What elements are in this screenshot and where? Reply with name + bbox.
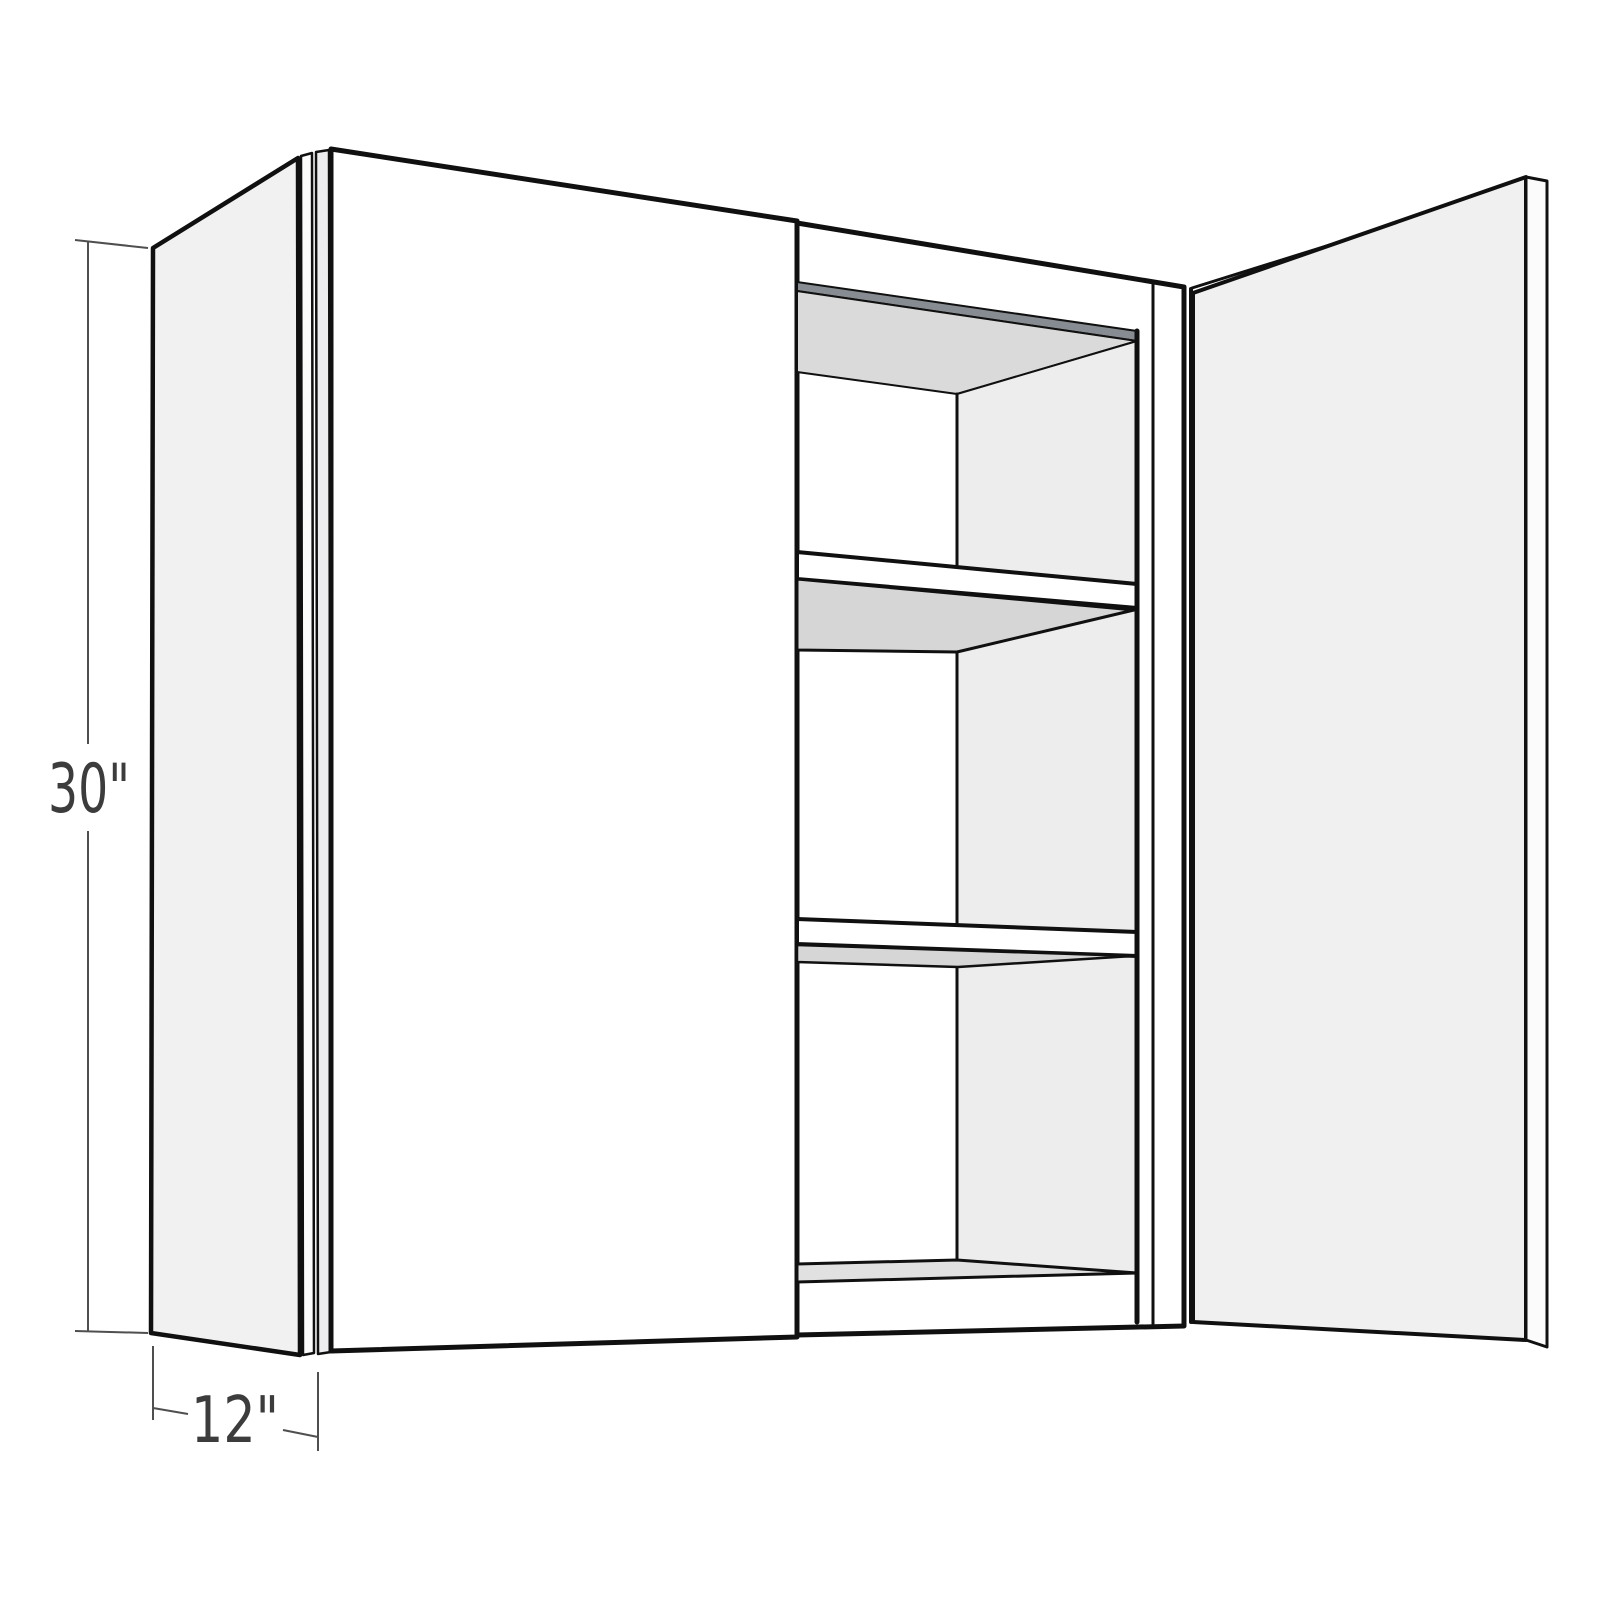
depth-dimension-line-left — [153, 1408, 188, 1414]
cabinet-diagram: 30" 12" — [0, 0, 1600, 1600]
height-dimension-tick-bottom — [75, 1331, 148, 1333]
left-door-face — [331, 149, 797, 1351]
cabinet-left-side-panel — [151, 158, 300, 1355]
interior-right-wall — [957, 341, 1137, 1273]
depth-dimension-line-right — [283, 1430, 318, 1437]
product-image: 30" 12" — [0, 0, 1600, 1600]
cabinet-box — [797, 223, 1184, 1335]
left-door-edge-band-outer — [301, 153, 314, 1355]
cabinet-right-door-open — [1191, 177, 1547, 1347]
open-door-edge-band — [1526, 177, 1547, 1347]
height-dimension-label: 30" — [48, 750, 130, 829]
depth-dimension: 12" — [153, 1346, 318, 1458]
height-dimension: 30" — [48, 240, 148, 1333]
open-door-face — [1193, 177, 1526, 1340]
depth-dimension-label: 12" — [191, 1384, 279, 1458]
left-side-panel-face — [151, 158, 300, 1355]
cabinet-left-door-closed — [301, 149, 797, 1355]
height-dimension-tick-top — [75, 240, 148, 248]
